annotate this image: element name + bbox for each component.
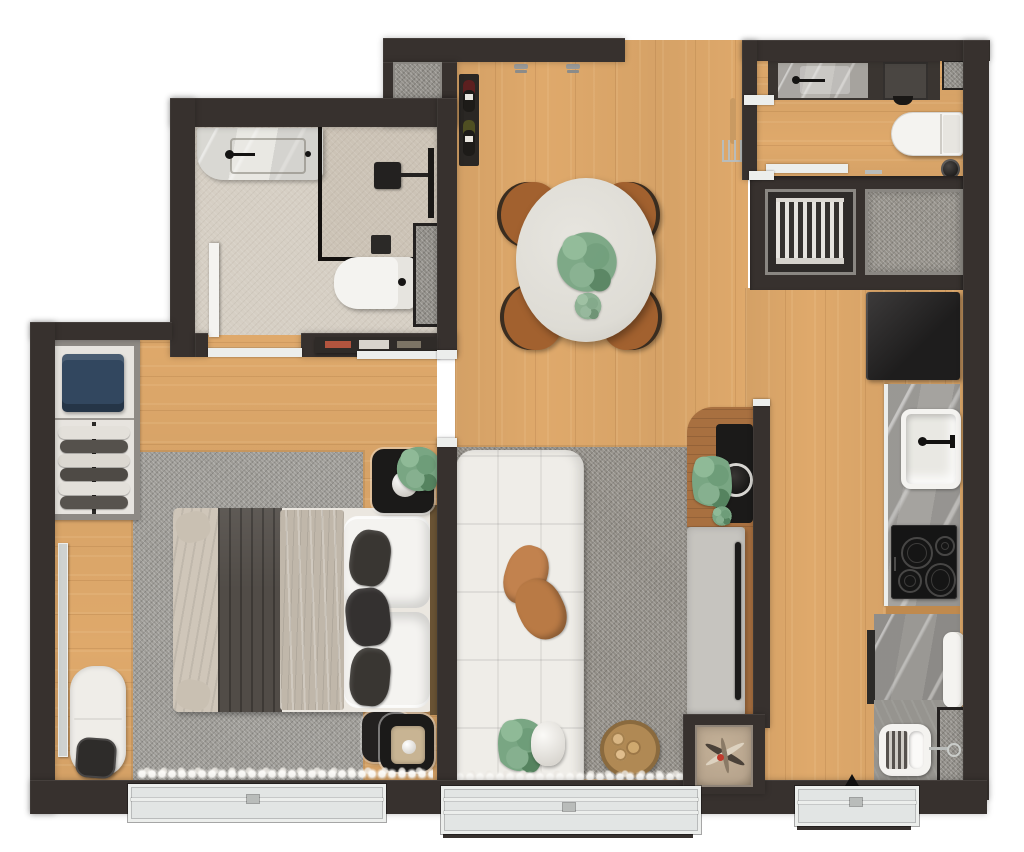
black-pouf <box>75 737 118 780</box>
kitchen-window <box>795 786 919 826</box>
tv-panel-wood-edge <box>745 527 753 717</box>
washer-tub <box>891 112 963 156</box>
wall-laundry-top <box>742 40 990 61</box>
wall-bedroom-living-divider <box>437 440 457 785</box>
shower-arm <box>401 173 431 177</box>
hall-door-sill <box>357 351 440 359</box>
wardrobe <box>48 340 140 520</box>
wall-entry-top <box>383 38 625 62</box>
bed-dark-blanket <box>218 508 282 712</box>
burner-oval <box>925 563 956 597</box>
wall-kitchen-divider <box>753 402 770 728</box>
decor-ball <box>402 740 416 754</box>
laundry-counter-top <box>778 63 868 98</box>
bathroom-door-sill <box>208 348 302 357</box>
laundry-door-sill <box>744 95 774 105</box>
folded-blue-clothes <box>62 354 124 412</box>
laundry-sill <box>749 171 774 180</box>
double-bed <box>173 508 433 712</box>
service-floor-mat <box>868 192 960 272</box>
hanging-garment <box>60 496 128 509</box>
condenser-niche <box>768 192 853 272</box>
shower-head <box>374 162 401 189</box>
wall-hook <box>566 64 580 69</box>
hanging-garment <box>60 468 128 481</box>
utility-sink-washboard <box>886 731 908 769</box>
laundry-dark-basin <box>883 62 928 100</box>
wine-rack <box>459 74 479 166</box>
wall-bathroom-bottom-stub <box>195 333 208 357</box>
laundry-faucet-spout <box>799 79 825 82</box>
living-window <box>441 786 701 834</box>
full-length-mirror <box>58 543 68 757</box>
wall-bathroom-left <box>170 98 195 357</box>
wardrobe-shelf-divider <box>54 418 134 420</box>
utility-faucet-handle <box>947 743 961 757</box>
dried-flower-niche <box>695 725 753 787</box>
vanity-second-faucet <box>305 151 311 157</box>
sink-faucet-handle <box>950 435 955 448</box>
small-stool <box>865 170 882 174</box>
ac-condenser-grille <box>776 198 844 264</box>
table-centerpiece-plant <box>556 226 618 298</box>
cooktop-controls <box>894 557 896 571</box>
kitchen-sink <box>901 409 961 489</box>
utility-sink <box>879 724 931 776</box>
shower-glass-frame-vertical <box>318 127 322 261</box>
bedroom-door-jamb <box>437 350 457 359</box>
wall-left-outer <box>30 322 55 814</box>
sink-faucet-arm <box>925 440 953 444</box>
divider-plant-small <box>710 506 734 526</box>
coat-rack-pole <box>730 98 736 144</box>
bathroom-vanity <box>197 128 323 180</box>
table-plant-sprig <box>574 290 602 322</box>
divider-wall-cap <box>753 399 770 406</box>
tv <box>735 542 741 700</box>
open-white-door <box>943 632 965 708</box>
wall-laundry-left <box>742 40 757 180</box>
counter-dark-rail <box>867 630 875 704</box>
wall-right-outer <box>963 40 989 800</box>
laundry-wall-shelf <box>766 164 848 173</box>
shower-wall-pipe <box>428 148 434 218</box>
flush-plate <box>371 235 391 254</box>
burner-small <box>935 536 955 556</box>
laundry-corner-mat <box>944 62 963 88</box>
burner-large <box>901 537 933 569</box>
vanity-sink-basin <box>230 138 306 174</box>
hanging-garment <box>58 482 130 495</box>
wine-bottle <box>463 120 475 156</box>
bathroom-open-door <box>209 243 219 337</box>
coat-rack-prongs <box>722 140 744 162</box>
wall-bathroom-right <box>437 98 457 357</box>
floor-plan <box>0 0 1024 852</box>
wall-hook <box>514 64 528 69</box>
hanging-garment <box>58 426 130 439</box>
utility-sink-basin <box>909 731 924 769</box>
wall-bathroom-top <box>170 98 457 127</box>
plant-pot-white <box>531 722 565 766</box>
bedroom-door-jamb <box>437 438 457 447</box>
hanging-garment <box>60 440 128 453</box>
toilet <box>334 257 416 309</box>
bed-duvet <box>280 510 344 710</box>
nightstand-plant <box>396 442 442 496</box>
hanging-garment <box>58 454 130 467</box>
cooktop <box>891 525 957 599</box>
bedroom-window <box>128 784 386 822</box>
burner-medium <box>898 569 922 593</box>
utility-faucet-arm <box>929 747 949 750</box>
vanity-faucet-spout <box>233 153 255 156</box>
red-accent <box>717 754 724 761</box>
bathroom-niche-mat <box>416 226 438 324</box>
wine-bottle <box>463 80 475 112</box>
refrigerator <box>866 292 960 380</box>
toilet-button <box>398 278 406 286</box>
